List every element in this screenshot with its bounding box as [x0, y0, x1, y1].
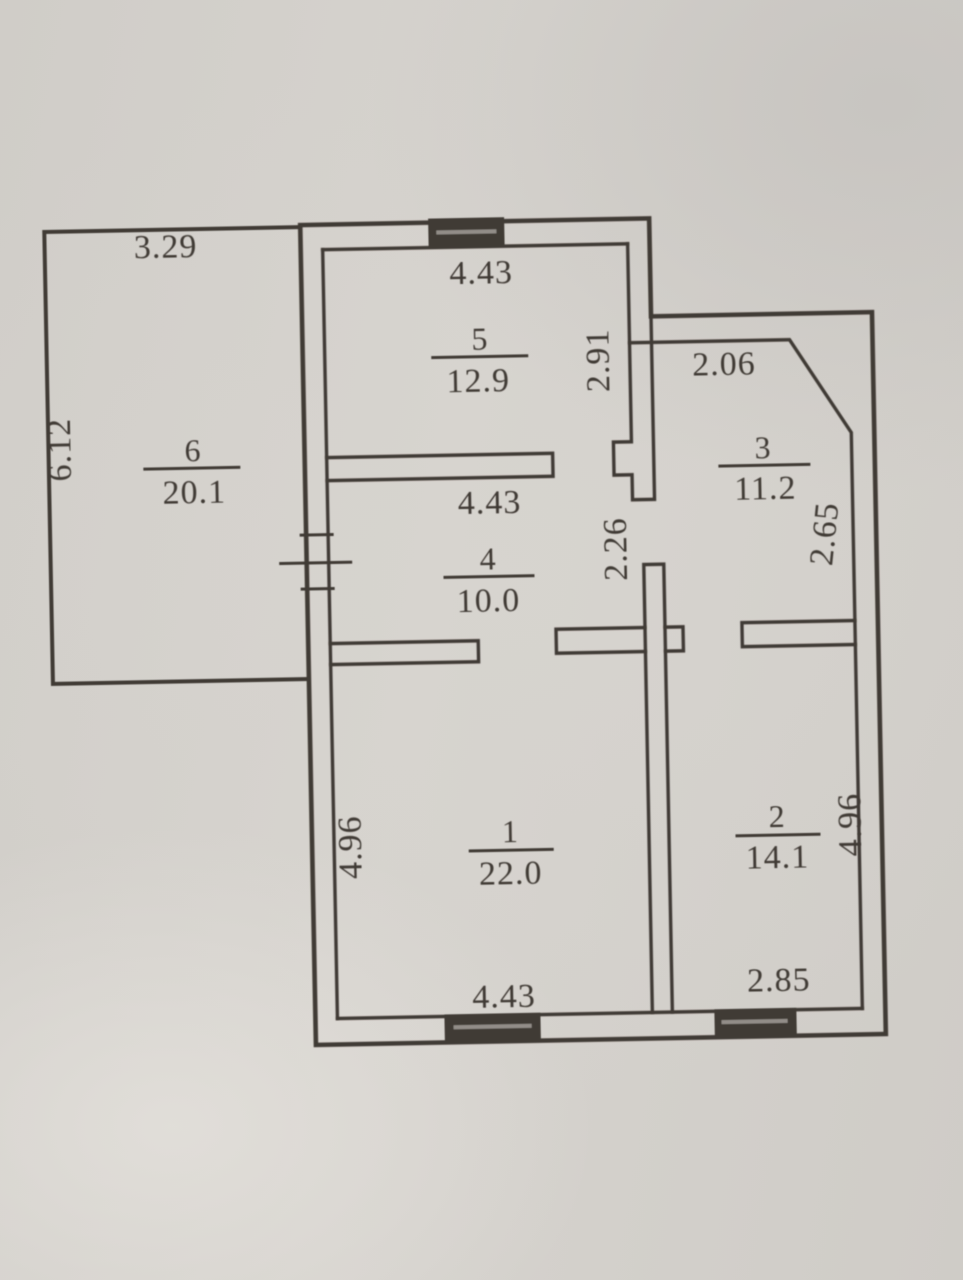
room-1-fraction-line — [470, 849, 552, 851]
walls-group — [44, 214, 886, 1050]
floor-plan-drawing: 3.29 6.12 6 20.1 4.43 2.91 5 12.9 2.06 2… — [37, 210, 886, 1050]
room3-room2-wall — [742, 621, 855, 647]
room-2-fraction-line — [737, 834, 819, 836]
room-3-area: 11.2 — [734, 470, 797, 508]
room4-room1-wall — [330, 641, 478, 665]
room-3-number: 3 — [754, 429, 771, 465]
dim-room3-top: 2.06 — [692, 345, 756, 383]
room-4-number: 4 — [479, 540, 496, 576]
dim-room3-right: 2.65 — [803, 500, 846, 567]
floor-plan: 3.29 6.12 6 20.1 4.43 2.91 5 12.9 2.06 2… — [0, 0, 963, 1280]
room-1-area: 22.0 — [479, 855, 543, 893]
divider-left-stub-wall — [556, 628, 645, 654]
room-5-number: 5 — [471, 321, 488, 357]
inner-left-wall — [323, 250, 338, 1019]
dim-room1-bottom: 4.43 — [472, 978, 536, 1016]
room-6-outline-wall — [44, 227, 309, 684]
door-mark — [280, 534, 351, 589]
room-6-number: 6 — [184, 432, 201, 468]
room-5-area: 12.9 — [446, 362, 510, 400]
dim-room6-left: 6.12 — [41, 418, 79, 482]
dim-room6-top: 3.29 — [133, 228, 197, 266]
room-1-number: 1 — [502, 813, 519, 849]
dim-room4-top: 4.43 — [457, 484, 521, 522]
labels-group: 3.29 6.12 6 20.1 4.43 2.91 5 12.9 2.06 2… — [37, 215, 872, 1024]
room-2-number: 2 — [768, 798, 785, 834]
room1-room2-divider-wall — [644, 564, 673, 1012]
divider-right-stub-wall — [665, 627, 683, 651]
scanned-paper-background: 3.29 6.12 6 20.1 4.43 2.91 5 12.9 2.06 2… — [0, 0, 963, 1280]
dim-room5-top: 4.43 — [449, 254, 513, 292]
room-6-area: 20.1 — [162, 474, 226, 512]
dim-room5-right: 2.91 — [579, 328, 617, 392]
room5-room4-wall — [327, 453, 553, 480]
dim-room2-bottom: 2.85 — [747, 961, 811, 999]
dim-room1-left: 4.96 — [332, 815, 370, 879]
room-2-area: 14.1 — [745, 838, 809, 876]
dim-room2-right: 4.96 — [831, 793, 869, 857]
room-4-area: 10.0 — [456, 582, 520, 620]
dim-hall-right: 2.26 — [597, 517, 635, 581]
